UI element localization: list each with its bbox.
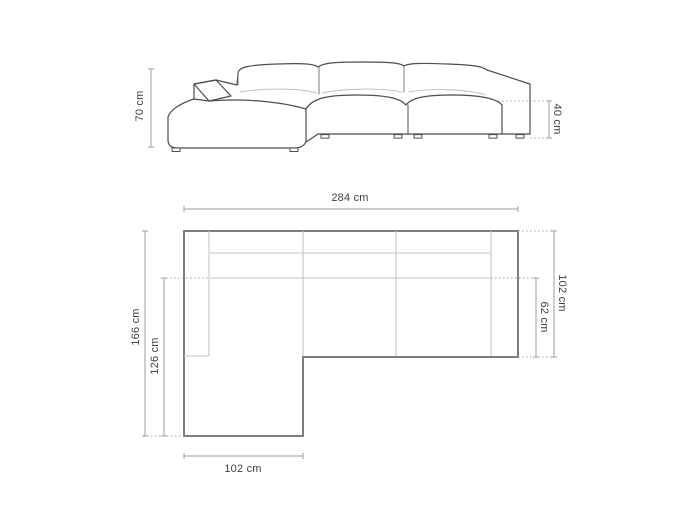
dim-line-height [148,69,154,147]
sofa-top-plan [184,231,518,436]
dim-label-seat-height: 40 cm [551,104,563,135]
dim-label-total-width: 284 cm [331,192,368,204]
dim-line-chaise-width [184,453,303,459]
diagram-linework [0,0,700,525]
dim-line-total-width [184,206,518,212]
dim-label-chaise-total-length: 166 cm [130,308,142,345]
sofa-front-outline [168,62,530,148]
sofa-front-elevation [168,62,530,152]
dim-label-chaise-seat-length: 126 cm [149,337,161,374]
dim-label-chaise-width: 102 cm [224,463,261,475]
dim-line-chaise-seat-length [161,278,167,436]
dim-label-seat-depth: 62 cm [538,302,550,333]
dim-line-chaise-total-length [142,231,148,436]
dim-label-height: 70 cm [134,91,146,122]
dimension-diagram: 70 cm 40 cm 284 cm 102 cm 62 cm 166 cm 1… [0,0,700,525]
plan-outline [184,231,518,436]
dim-label-total-depth: 102 cm [556,274,568,311]
